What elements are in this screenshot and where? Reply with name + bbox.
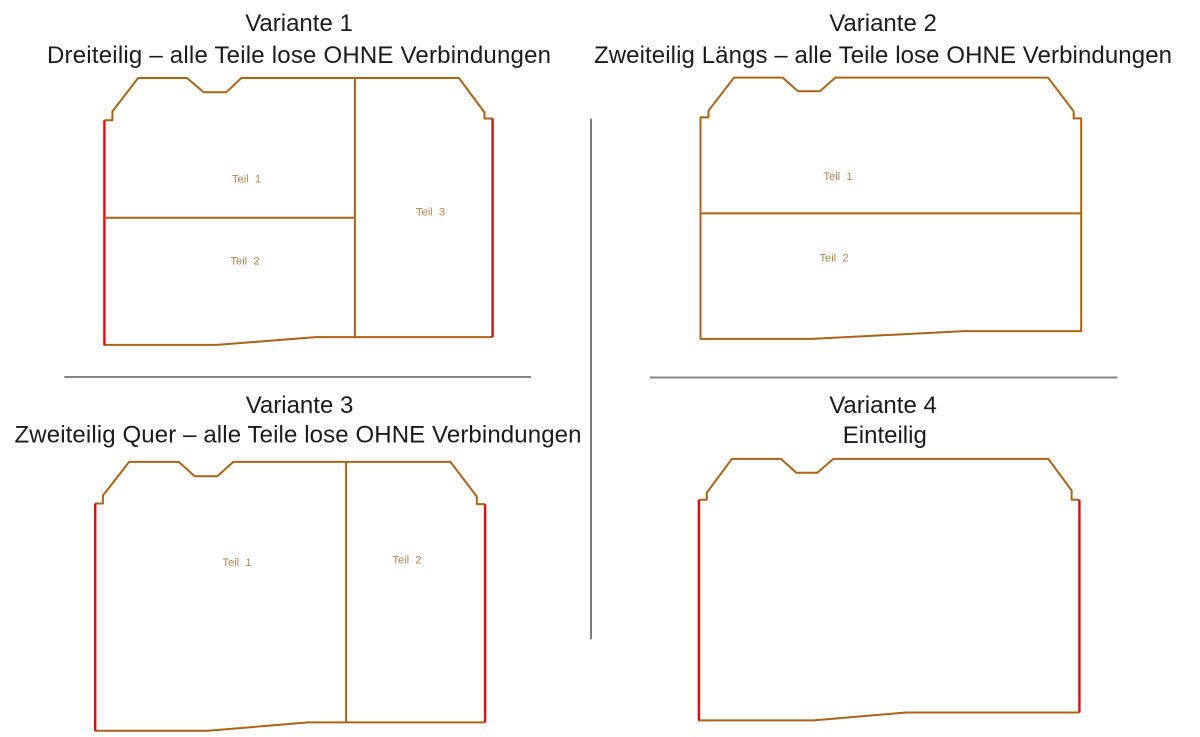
svg-text:Einteilig: Einteilig [843,422,927,449]
svg-text:Variante 1: Variante 1 [245,10,353,37]
svg-text:Zweiteilig Quer – alle Teile l: Zweiteilig Quer – alle Teile lose OHNE V… [15,422,582,449]
svg-text:Teil 3: Teil 3 [416,207,445,219]
svg-text:Teil 1: Teil 1 [222,557,251,569]
svg-text:Teil 1: Teil 1 [232,174,261,186]
svg-text:Variante 4: Variante 4 [829,392,937,419]
svg-text:Variante 2: Variante 2 [829,10,937,37]
svg-text:Teil 2: Teil 2 [392,554,421,566]
svg-text:Dreiteilig – alle Teile lose O: Dreiteilig – alle Teile lose OHNE Verbin… [47,42,551,69]
svg-text:Teil 2: Teil 2 [230,255,259,267]
svg-text:Variante 3: Variante 3 [246,392,354,419]
svg-text:Teil 2: Teil 2 [819,252,848,264]
svg-text:Zweiteilig Längs – alle Teile: Zweiteilig Längs – alle Teile lose OHNE … [594,42,1172,69]
svg-text:Teil 1: Teil 1 [823,171,852,183]
